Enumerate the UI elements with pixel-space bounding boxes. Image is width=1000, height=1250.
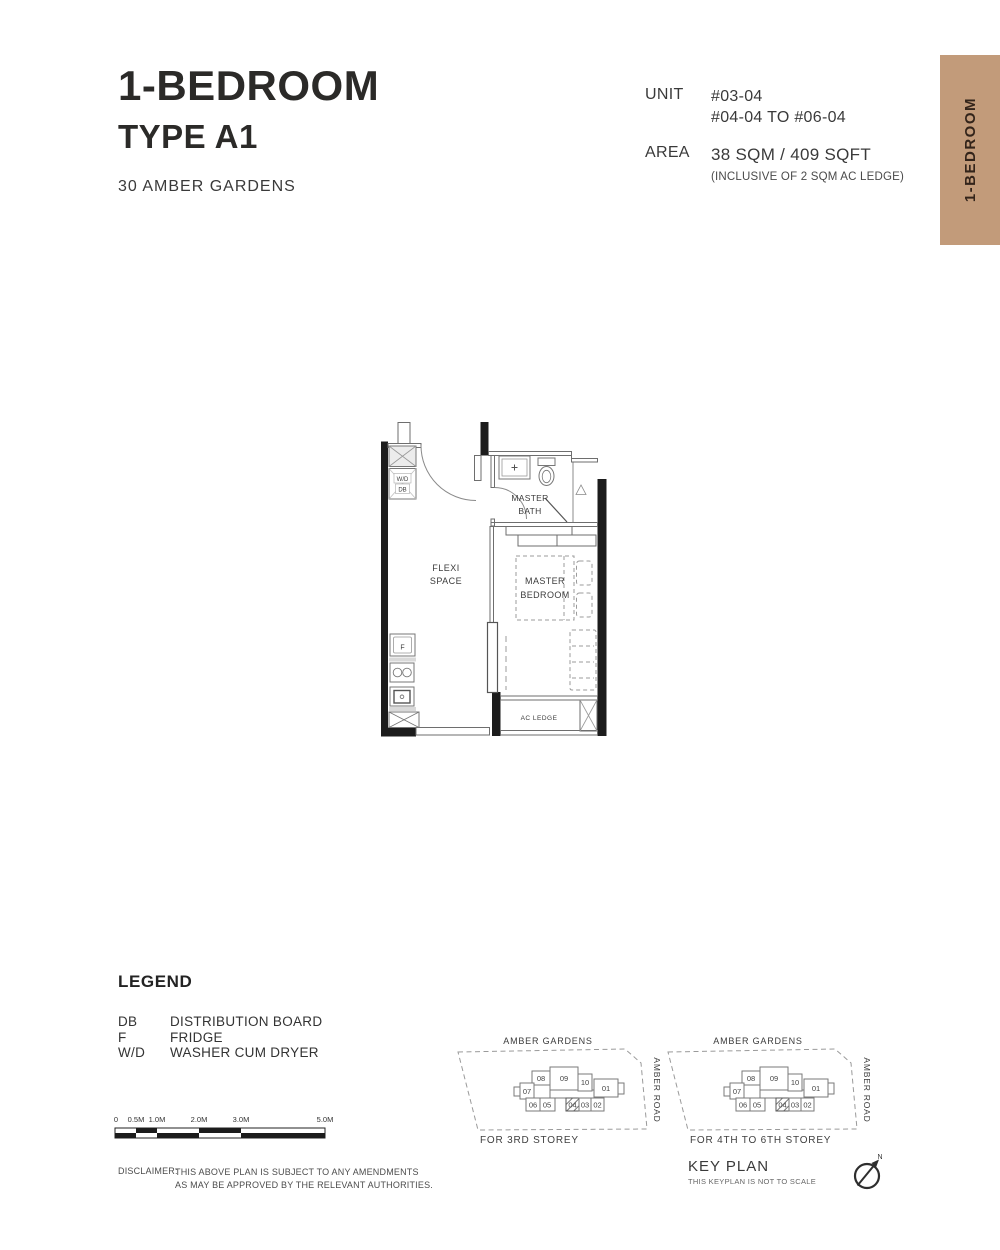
legend-abbr: DB: [118, 1014, 170, 1030]
legend-abbr: W/D: [118, 1045, 170, 1061]
legend-row-wd: W/D WASHER CUM DRYER: [118, 1045, 322, 1061]
unit-06: 06: [529, 1101, 537, 1110]
unit-line-1: #03-04: [711, 86, 846, 107]
keyplan-caption: FOR 4TH TO 6TH STOREY: [690, 1135, 831, 1146]
road-label-right: AMBER ROAD: [862, 1057, 870, 1122]
road-label-top: AMBER GARDENS: [713, 1036, 802, 1046]
road-label-top: AMBER GARDENS: [503, 1036, 592, 1046]
keyplan-note: THIS KEYPLAN IS NOT TO SCALE: [688, 1177, 816, 1186]
side-tab-label: 1-BEDROOM: [962, 97, 979, 202]
unit-line-2: #04-04 TO #06-04: [711, 107, 846, 128]
area-label: AREA: [645, 144, 711, 188]
flexi-space-label-1: FLEXI: [432, 563, 460, 573]
unit-07: 07: [523, 1087, 531, 1096]
unit-05: 05: [753, 1101, 761, 1110]
plan-type: TYPE A1: [118, 118, 379, 156]
legend-desc: DISTRIBUTION BOARD: [170, 1014, 322, 1030]
north-arrow-icon: N: [850, 1150, 890, 1194]
room-labels: FLEXI SPACE MASTER BATH MASTER BEDROOM F: [400, 493, 569, 652]
unit-area-spec: UNIT #03-04 #04-04 TO #06-04 AREA 38 SQM…: [645, 86, 904, 204]
unit-06: 06: [739, 1101, 747, 1110]
keyplan-3rd-storey: AMBER GARDENS AMBER ROAD 08 09 10 01 07 …: [453, 1033, 660, 1151]
unit-03: 03: [791, 1101, 799, 1110]
ac-ledge: AC LEDGE: [521, 700, 597, 731]
unit-label: UNIT: [645, 86, 711, 128]
entry-door-swing: [421, 446, 476, 501]
legend-row-db: DB DISTRIBUTION BOARD: [118, 1014, 322, 1030]
master-bath-label-1: MASTER: [511, 493, 548, 503]
project-name: 30 AMBER GARDENS: [118, 178, 379, 196]
unit-09: 09: [770, 1074, 778, 1083]
unit-07: 07: [733, 1087, 741, 1096]
unit-10: 10: [581, 1078, 589, 1087]
legend: LEGEND DB DISTRIBUTION BOARD F FRIDGE W/…: [118, 972, 322, 1061]
keyplan-title: KEY PLAN: [688, 1158, 816, 1175]
disclaimer: DISCLAIMER: THIS ABOVE PLAN IS SUBJECT T…: [118, 1166, 433, 1192]
unit-row: UNIT #03-04 #04-04 TO #06-04: [645, 86, 904, 128]
scale-tick: 0.5M: [128, 1115, 145, 1124]
bed: [516, 556, 574, 620]
sliding-partition-panel: [488, 623, 498, 693]
unit-02: 02: [803, 1101, 811, 1110]
unit-10: 10: [791, 1078, 799, 1087]
scale-tick: 2.0M: [191, 1115, 208, 1124]
scale-labels: 0 0.5M 1.0M 2.0M 3.0M 5.0M: [114, 1115, 333, 1124]
unit-02: 02: [593, 1101, 601, 1110]
scale-tick: 0: [114, 1115, 118, 1124]
page-title: 1-BEDROOM: [118, 64, 379, 108]
doors: [421, 446, 527, 520]
road-label-right: AMBER ROAD: [652, 1057, 660, 1122]
wardrobe: [570, 630, 596, 690]
scale-bar: 0 0.5M 1.0M 2.0M 3.0M 5.0M: [113, 1112, 343, 1146]
pillow-left: [577, 561, 593, 585]
legend-desc: FRIDGE: [170, 1030, 223, 1046]
wall-mid-bottom: [492, 692, 501, 736]
area-value: 38 SQM / 409 SQFT: [711, 144, 904, 165]
vanity-counter: [506, 527, 572, 536]
title-block: 1-BEDROOM TYPE A1 30 AMBER GARDENS: [118, 64, 379, 196]
disclaimer-line-1: THIS ABOVE PLAN IS SUBJECT TO ANY AMENDM…: [175, 1166, 433, 1179]
partition-walls: [388, 423, 598, 736]
keyplan-caption: FOR 3RD STOREY: [480, 1135, 579, 1146]
keyplan-4th-6th-storey: AMBER GARDENS AMBER ROAD 08 09 10 01 07 …: [663, 1033, 870, 1151]
floorplan-page: 1-BEDROOM TYPE A1 30 AMBER GARDENS UNIT …: [0, 0, 1000, 1250]
master-bedroom-label-1: MASTER: [525, 576, 565, 586]
side-tab-1-bedroom[interactable]: 1-BEDROOM: [940, 55, 1000, 245]
disclaimer-label: DISCLAIMER:: [118, 1166, 175, 1192]
wall-left: [381, 442, 388, 737]
wall-bottom-left: [381, 728, 416, 737]
flexi-space-label-2: SPACE: [430, 576, 462, 586]
washer-dryer-label: W/D: [397, 477, 409, 483]
wall-right: [598, 479, 607, 736]
scale-tick: 3.0M: [233, 1115, 250, 1124]
legend-abbr: F: [118, 1030, 170, 1046]
bathroom-fixtures: [499, 456, 555, 486]
unit-05: 05: [543, 1101, 551, 1110]
fridge-label: F: [400, 645, 404, 652]
pillow-right: [577, 593, 593, 617]
unit-09: 09: [560, 1074, 568, 1083]
legend-desc: WASHER CUM DRYER: [170, 1045, 319, 1061]
service-shaft: [398, 423, 410, 444]
unit-03: 03: [581, 1101, 589, 1110]
toilet-tank: [538, 458, 555, 466]
scale-tick: 5.0M: [317, 1115, 334, 1124]
distribution-board-label: DB: [398, 487, 406, 493]
unit-01: 01: [812, 1084, 820, 1093]
unit-01: 01: [602, 1084, 610, 1093]
legend-title: LEGEND: [118, 972, 322, 992]
unit-08: 08: [537, 1074, 545, 1083]
keyplan-footer: KEY PLAN THIS KEYPLAN IS NOT TO SCALE: [688, 1158, 816, 1186]
scale-tick: 1.0M: [149, 1115, 166, 1124]
floorplan-drawing: W/D DB: [358, 408, 640, 758]
disclaimer-line-2: AS MAY BE APPROVED BY THE RELEVANT AUTHO…: [175, 1179, 433, 1192]
unit-08: 08: [747, 1074, 755, 1083]
wall-top-right: [481, 422, 489, 456]
area-row: AREA 38 SQM / 409 SQFT (INCLUSIVE OF 2 S…: [645, 144, 904, 188]
unit-04: 04: [778, 1101, 786, 1110]
shower-drain-icon: [576, 485, 586, 495]
ac-ledge-label: AC LEDGE: [521, 715, 558, 722]
legend-row-f: F FRIDGE: [118, 1030, 322, 1046]
entry-cabinets: W/D DB: [389, 446, 416, 499]
master-bedroom-label-2: BEDROOM: [520, 590, 569, 600]
master-bath-label-2: BATH: [518, 506, 541, 516]
unit-04: 04: [568, 1101, 576, 1110]
area-note: (INCLUSIVE OF 2 SQM AC LEDGE): [711, 167, 904, 188]
